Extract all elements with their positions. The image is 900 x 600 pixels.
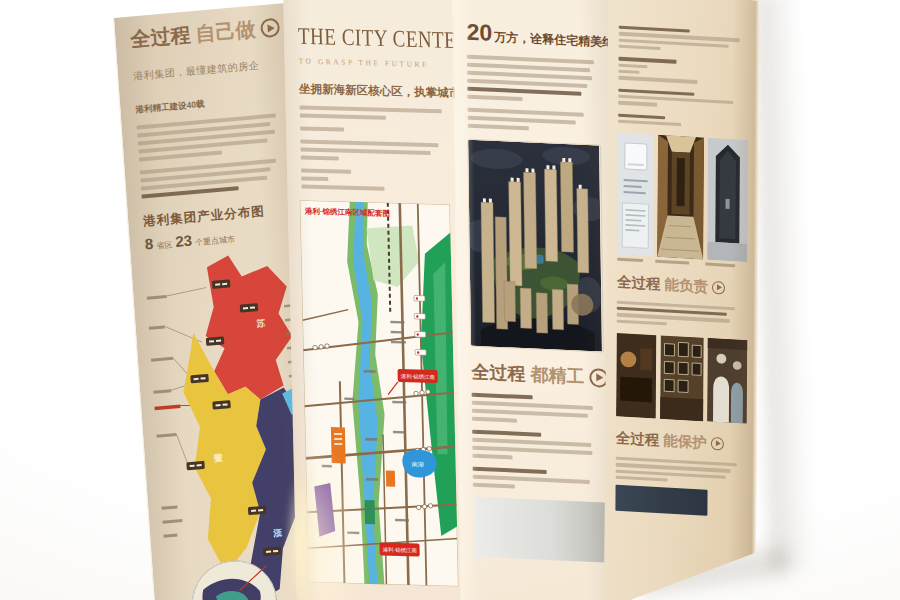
dark-interior-photo [616, 333, 656, 419]
body-text-block [618, 57, 749, 87]
play-arrow-icon [260, 18, 280, 39]
body-text-block [472, 393, 604, 427]
text-line [619, 45, 661, 51]
frame-wall-photo [660, 335, 704, 421]
people-photo [707, 338, 747, 424]
text-line [618, 76, 697, 84]
headline-text: 万方，诠释住宅精美绝伦…… [494, 29, 619, 53]
panel1-title-accent: 自己做 [195, 16, 257, 48]
text-line [618, 70, 639, 74]
body-text-block [467, 55, 600, 105]
brochure-panel-3: 20 万方，诠释住宅精美绝伦…… [452, 0, 619, 600]
text-line [468, 124, 529, 131]
text-line [300, 105, 442, 113]
aerial-rendering-photo [468, 140, 603, 352]
body-text-block [617, 300, 748, 330]
panel4-section2-heading: 全过程 能保护 [616, 429, 747, 455]
photo-row-2 [616, 333, 748, 424]
text-line [473, 483, 515, 489]
photo-row-1 [617, 133, 749, 262]
elevator-hall-photo [657, 135, 704, 260]
body-text-block [300, 105, 448, 121]
text-line [300, 139, 438, 147]
cast-shadow-right [754, 0, 839, 569]
body-text-block [300, 126, 448, 134]
text-line [473, 467, 547, 474]
block-orange [331, 427, 346, 463]
text-line [619, 57, 677, 63]
fold-light-glow [286, 470, 314, 600]
play-arrow-icon [712, 281, 725, 295]
section-accent: 能保护 [663, 431, 707, 452]
panel4-section1-heading: 全过程 能负责 [617, 272, 748, 298]
panel2-headline: 坐拥新海新区核心区，执掌城市大未来 [299, 81, 447, 100]
photo-of-folded-brochure: 全过程 自己做 港利集团，最懂建筑的房企 港利精工建设40载 港利集团产业分布图… [0, 0, 900, 600]
body-text-block [468, 108, 600, 134]
text-line [301, 155, 340, 160]
body-text-block [301, 168, 449, 192]
text-line [618, 113, 665, 119]
area-road-map: 南湖 港利·锦绣江南 港利·锦绣江南 港利·锦绣江南区域配套图 [300, 200, 459, 586]
body-text-block [137, 113, 283, 162]
text-line [618, 101, 657, 106]
text-line [301, 147, 431, 155]
text-line [472, 454, 512, 460]
body-text-block [140, 158, 285, 199]
text-line [301, 168, 351, 173]
play-arrow-icon [711, 437, 724, 451]
body-text-block [616, 457, 747, 487]
stat-label: 省区 [156, 239, 173, 251]
panel2-subtitle-en: TO GRASP THE FUTURE [298, 56, 446, 69]
body-text-block [619, 26, 750, 56]
panel2-title-en: THE CITY CENTER [298, 22, 447, 54]
project-marker-2: 港利·锦绣江南 [379, 542, 419, 556]
text-line [467, 95, 522, 102]
section-title: 全过程 [616, 429, 660, 450]
text-line [472, 393, 533, 400]
block-teal [365, 500, 376, 524]
text-line [472, 417, 517, 423]
caption-bar [655, 260, 689, 264]
map-highlight-callout [154, 405, 180, 411]
lake-label: 南湖 [412, 461, 424, 467]
appliance-photo [617, 133, 654, 257]
section-accent: 能负责 [664, 275, 708, 296]
caption-bar [617, 258, 643, 262]
caption-bar [705, 263, 735, 267]
text-line [618, 120, 681, 127]
stat-label: 个重点城市 [195, 234, 236, 248]
stat-number: 23 [175, 231, 193, 249]
text-line [616, 476, 668, 482]
text-line [468, 116, 576, 125]
body-text-block [618, 113, 749, 130]
text-line [300, 126, 344, 131]
stat-number: 8 [144, 235, 154, 253]
text-line [472, 430, 541, 437]
body-text-block [473, 467, 605, 493]
headline-number: 20 [466, 19, 492, 47]
panel1-subtitle: 港利集团，最懂建筑的房企 [133, 57, 277, 84]
bottom-photo-cropped [615, 485, 707, 516]
body-text-block [472, 430, 604, 464]
dark-door-photo [707, 138, 748, 262]
panel1-tagline: 港利精工建设40载 [135, 92, 279, 117]
section-title: 全过程 [617, 272, 661, 293]
panel3-section-heading: 全过程 都精工 [471, 360, 603, 390]
text-line [301, 184, 384, 190]
section-accent: 都精工 [530, 362, 584, 388]
block-orange-2 [386, 471, 395, 487]
panel3-headline: 20 万方，诠释住宅精美绝伦…… [466, 19, 598, 52]
panel1-title: 全过程 [130, 21, 192, 53]
text-line [300, 113, 386, 119]
panel1-heading: 全过程 自己做 [130, 14, 275, 54]
text-line [617, 319, 667, 325]
body-text-block [300, 139, 448, 163]
brochure-panel-4: 全过程 能负责 [604, 0, 760, 600]
text-line [618, 63, 647, 68]
section-title: 全过程 [471, 360, 525, 386]
text-line [301, 176, 328, 181]
body-text-block [618, 88, 749, 111]
interior-photo-cropped [473, 497, 606, 563]
